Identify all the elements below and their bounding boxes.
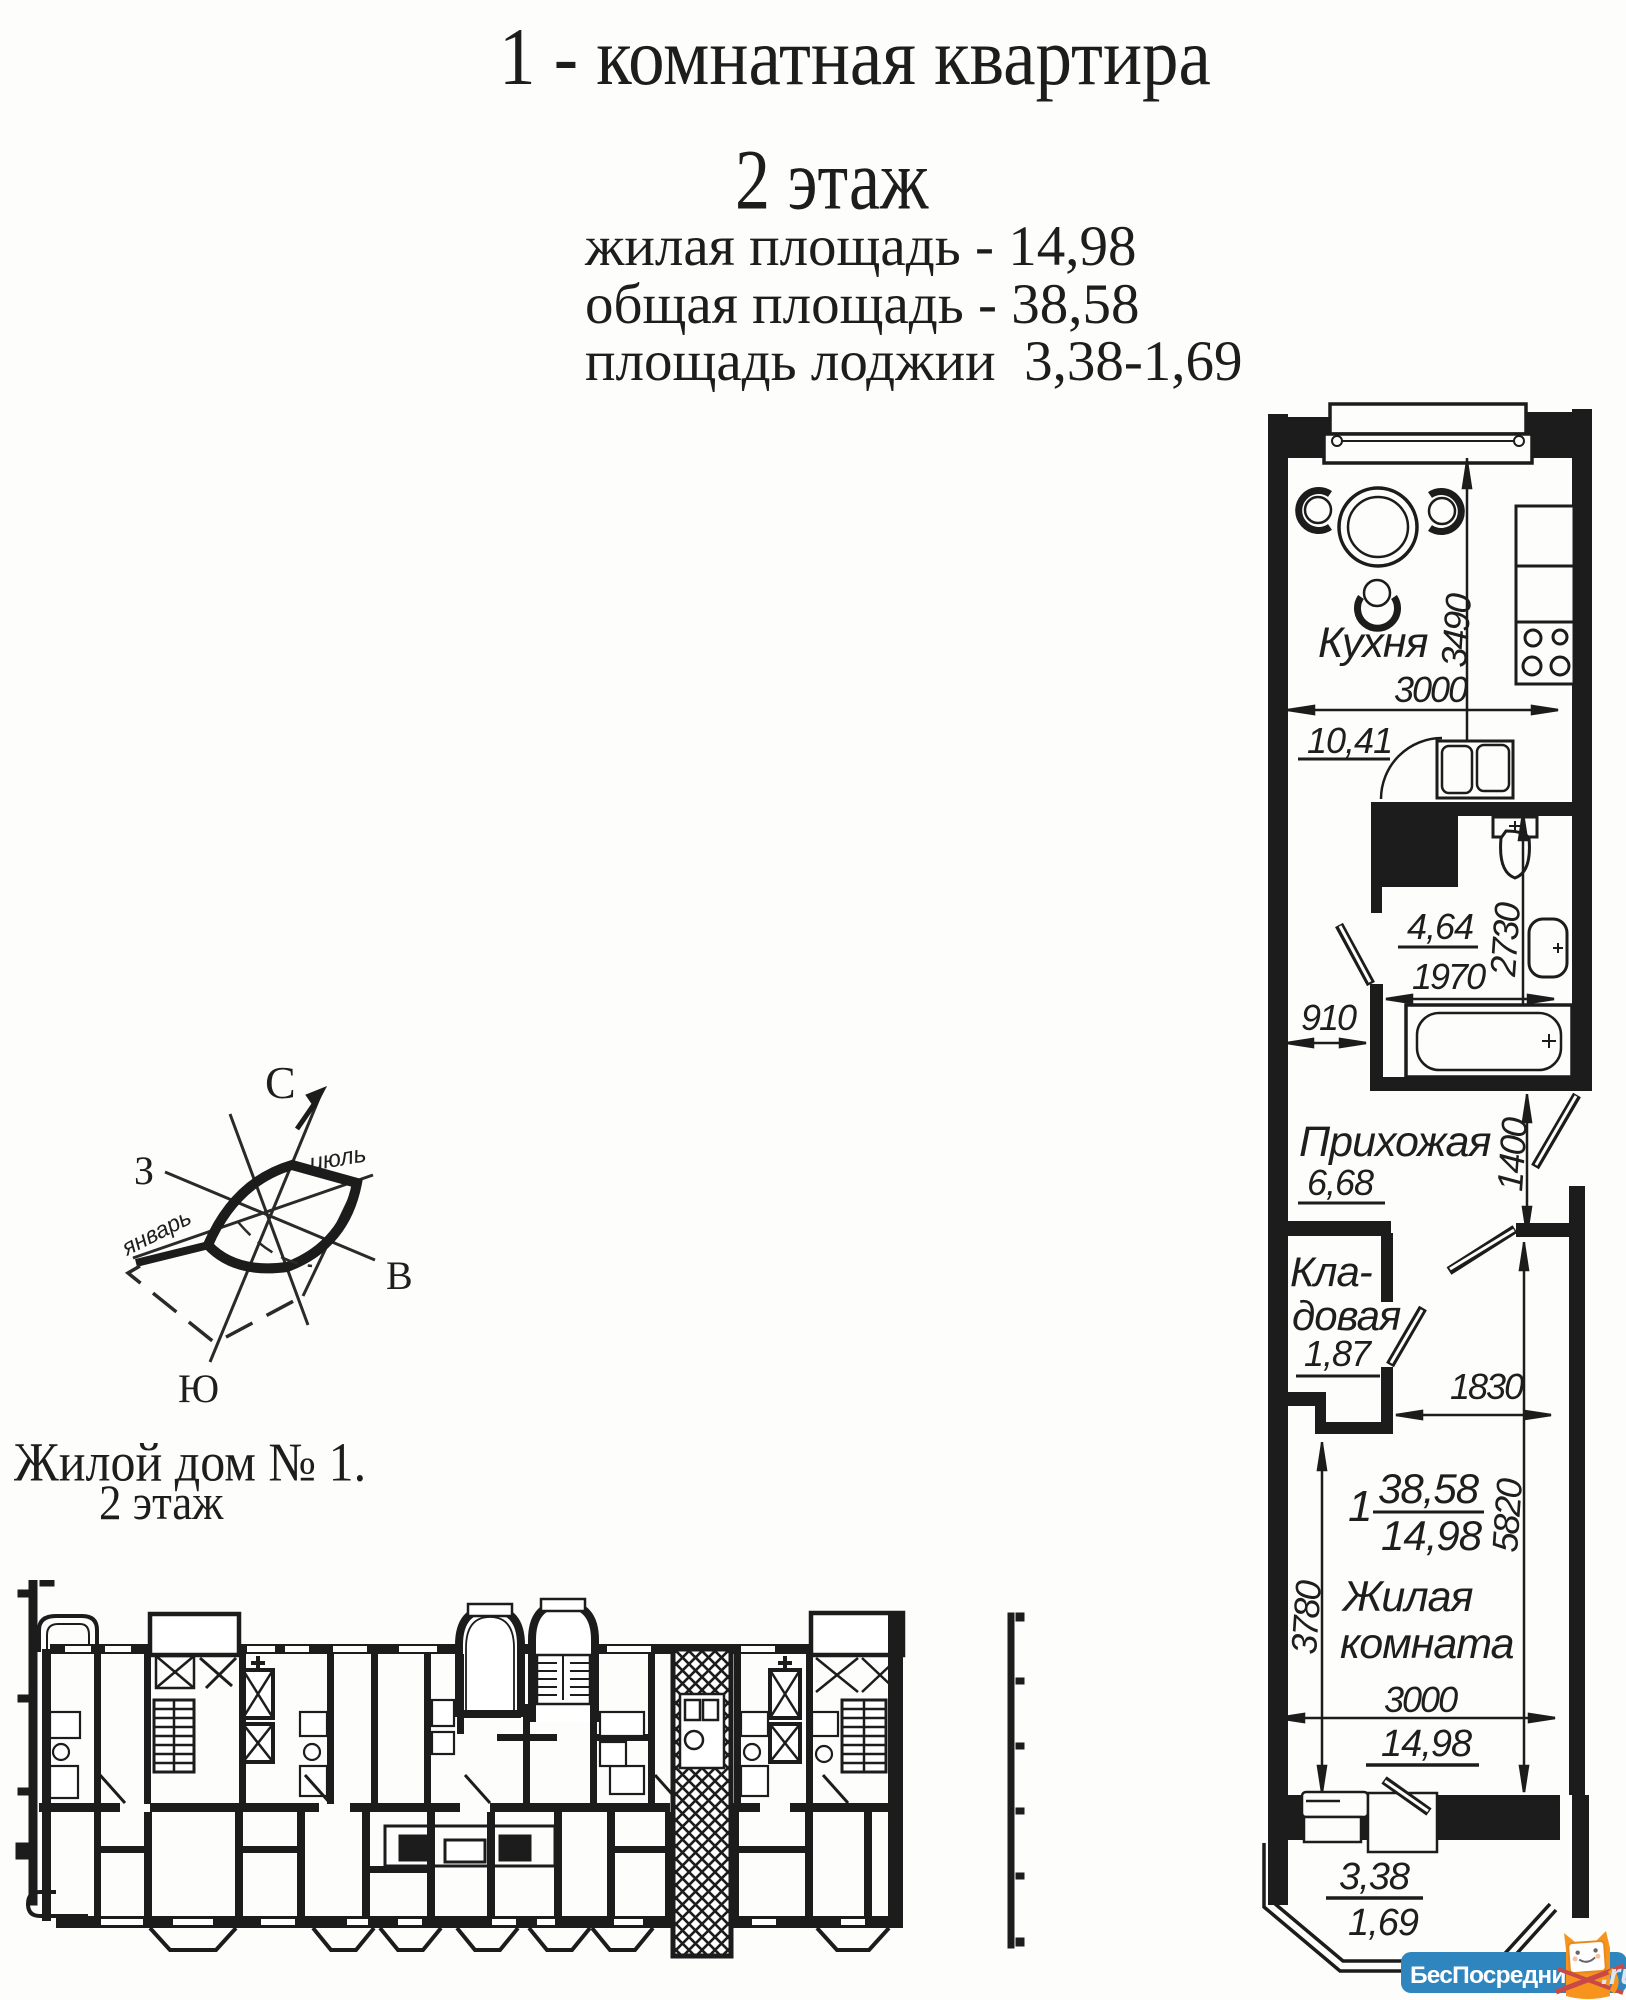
svg-text:1970: 1970 <box>1412 956 1486 997</box>
svg-text:довая: довая <box>1292 1292 1401 1339</box>
svg-text:С: С <box>265 1057 296 1108</box>
svg-text:14,98: 14,98 <box>1381 1512 1483 1559</box>
svg-text:6,68: 6,68 <box>1307 1162 1374 1203</box>
svg-text:3000: 3000 <box>1394 669 1468 710</box>
svg-text:З: З <box>134 1148 154 1193</box>
svg-text:1830: 1830 <box>1450 1366 1524 1407</box>
svg-text:10,41: 10,41 <box>1307 720 1392 761</box>
svg-text:.ru: .ru <box>1601 1959 1626 1991</box>
svg-text:БесПосредника: БесПосредника <box>1410 1962 1591 1989</box>
svg-text:Кухня: Кухня <box>1318 619 1429 667</box>
svg-text:38,58: 38,58 <box>1378 1465 1480 1512</box>
svg-text:1: 1 <box>1348 1482 1372 1531</box>
svg-text:Кла-: Кла- <box>1290 1248 1373 1295</box>
svg-text:3000: 3000 <box>1384 1679 1458 1720</box>
svg-text:1,87: 1,87 <box>1304 1333 1373 1374</box>
svg-text:2730: 2730 <box>1482 901 1528 979</box>
svg-text:4,64: 4,64 <box>1407 906 1473 947</box>
svg-text:Жилая: Жилая <box>1341 1573 1474 1621</box>
svg-text:3,38: 3,38 <box>1339 1856 1410 1898</box>
svg-text:июль: июль <box>307 1140 368 1176</box>
svg-text:Прихожая: Прихожая <box>1299 1118 1491 1166</box>
svg-text:14,98: 14,98 <box>1381 1723 1472 1765</box>
svg-text:910: 910 <box>1301 997 1357 1038</box>
svg-text:Ю: Ю <box>178 1366 219 1411</box>
svg-text:комната: комната <box>1340 1620 1514 1668</box>
svg-text:3490: 3490 <box>1433 592 1479 669</box>
svg-text:В: В <box>386 1253 413 1298</box>
